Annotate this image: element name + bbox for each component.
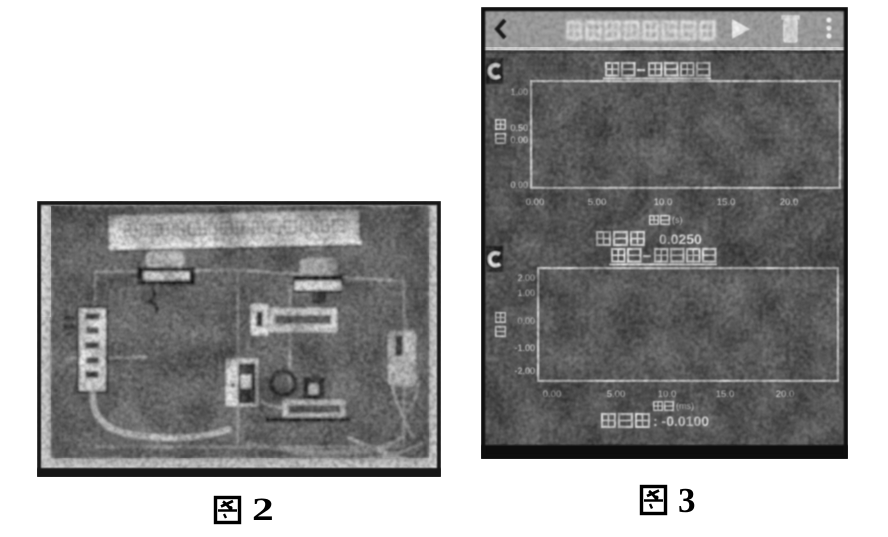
svg-text:3: 3 (678, 481, 696, 520)
svg-text:2: 2 (252, 492, 274, 528)
